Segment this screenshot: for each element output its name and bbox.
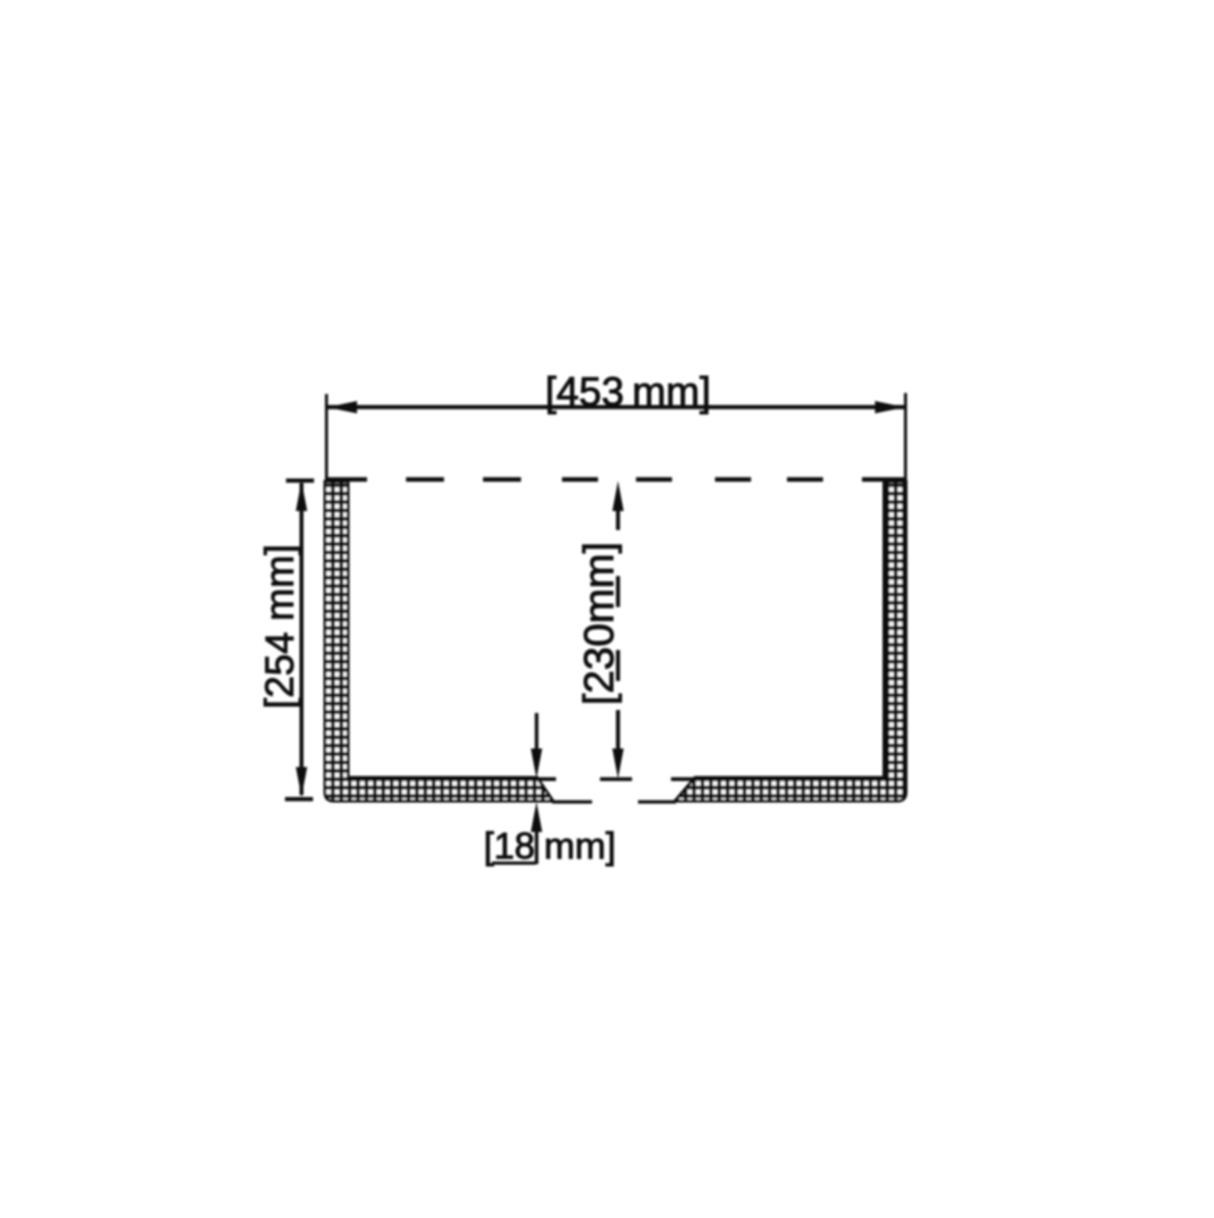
svg-text:[230mm]: [230mm] (575, 542, 622, 705)
svg-text:mm]: mm] (544, 826, 616, 867)
svg-text:[254 mm]: [254 mm] (258, 544, 302, 709)
svg-text:[18: [18 (484, 826, 535, 867)
svg-text:[453 mm]: [453 mm] (545, 368, 711, 414)
